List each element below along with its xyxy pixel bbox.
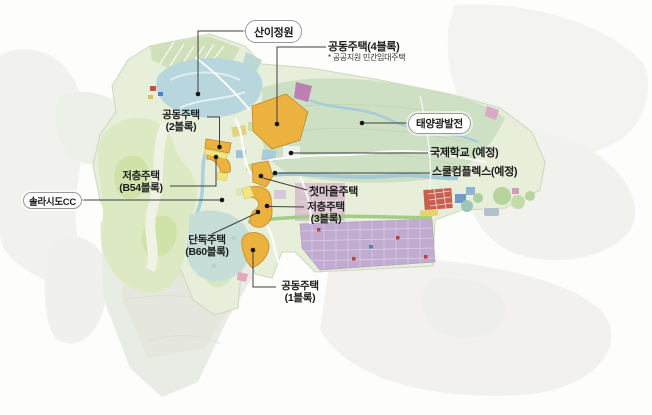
label-school-complex: 스쿨컴플렉스(예정): [432, 166, 517, 178]
label-b54: 저층주택 (B54블록): [112, 171, 170, 195]
label-low3: 저층주택 (3블록): [304, 202, 348, 226]
label-apt1-line2: (1블록): [276, 293, 324, 305]
label-apt2: 공동주택 (2블록): [155, 110, 207, 134]
label-b54-line2: (B54블록): [112, 183, 170, 195]
label-apt4: 공동주택(4블록) * 공공지원 민간임대주택: [328, 41, 405, 63]
label-b54-line1: 저층주택: [112, 171, 170, 183]
label-apt1-line1: 공동주택: [276, 281, 324, 293]
label-low3-line2: (3블록): [304, 214, 348, 226]
label-apt2-line2: (2블록): [155, 122, 207, 134]
label-intl-school: 국제학교 (예정): [430, 147, 498, 159]
label-sanigarden: 산이정원: [245, 20, 302, 43]
label-low3-line1: 저층주택: [304, 202, 348, 214]
label-solar-power: 태양광발전: [408, 113, 471, 134]
label-solasido-cc: 솔라시도CC: [23, 192, 82, 209]
leader-low3: [269, 207, 304, 208]
label-apt4-title: 공동주택(4블록): [328, 41, 405, 53]
label-b60-line1: 단독주택: [180, 235, 234, 247]
label-apt1: 공동주택 (1블록): [276, 281, 324, 305]
solar-panel-grid: [300, 218, 435, 270]
label-apt4-note: * 공공지원 민간임대주택: [328, 54, 405, 63]
label-apt2-line1: 공동주택: [155, 110, 207, 122]
label-first-village: 첫마을주택: [309, 186, 358, 198]
label-b60-line2: (B60블록): [180, 247, 234, 259]
map-screenshot: 산이정원 솔라시도CC 태양광발전 공동주택(4블록) * 공공지원 민간임대주…: [0, 0, 652, 415]
label-b60: 단독주택 (B60블록): [180, 235, 234, 259]
